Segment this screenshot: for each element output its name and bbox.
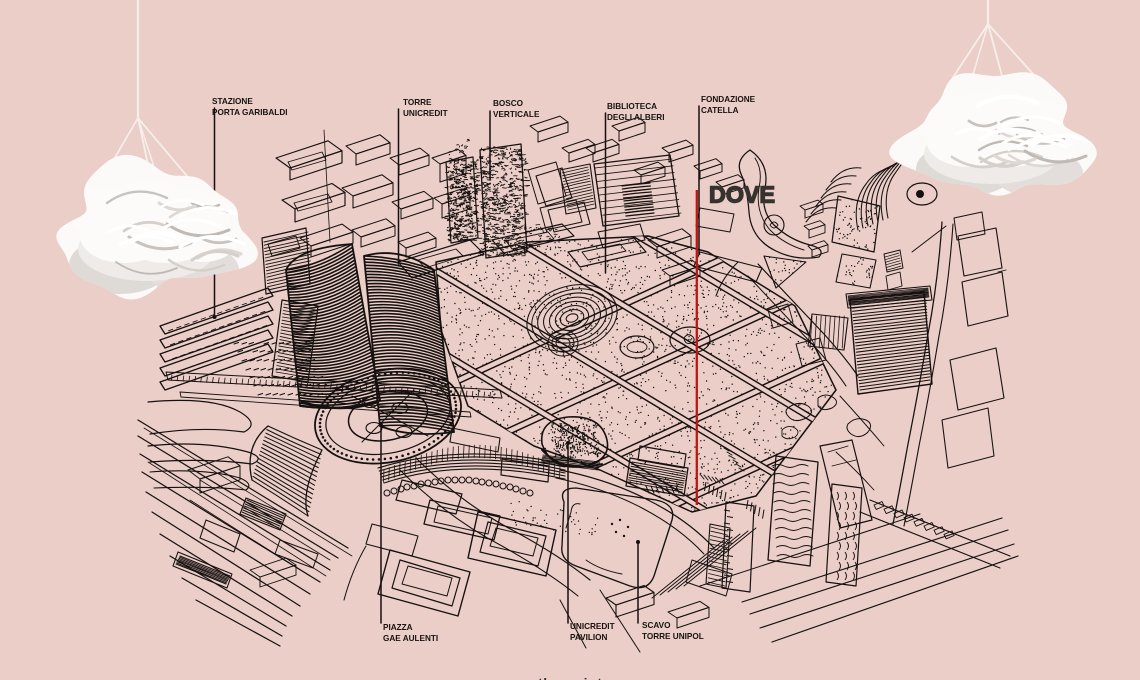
svg-text:VERTICALE: VERTICALE [493,110,540,119]
svg-text:STAZIONE: STAZIONE [212,97,253,106]
svg-text:TORRE: TORRE [403,98,432,107]
svg-text:UNICREDIT: UNICREDIT [403,109,448,118]
svg-text:SCAVO: SCAVO [642,621,671,630]
svg-text:PAVILION: PAVILION [570,633,608,642]
svg-text:BIBLIOTECA: BIBLIOTECA [607,102,657,111]
svg-text:PORTA GARIBALDI: PORTA GARIBALDI [212,108,288,117]
svg-text:PIAZZA: PIAZZA [383,623,413,632]
svg-text:DEGLI ALBERI: DEGLI ALBERI [607,113,664,122]
svg-text:the point: the point [538,675,603,680]
svg-text:UNICREDIT: UNICREDIT [570,622,615,631]
svg-text:BOSCO: BOSCO [493,99,524,108]
svg-text:FONDAZIONE: FONDAZIONE [701,95,756,104]
svg-text:CATELLA: CATELLA [701,106,739,115]
svg-text:TORRE UNIPOL: TORRE UNIPOL [642,632,704,641]
svg-text:GAE AULENTI: GAE AULENTI [383,634,438,643]
svg-text:DOVE: DOVE [709,182,775,208]
